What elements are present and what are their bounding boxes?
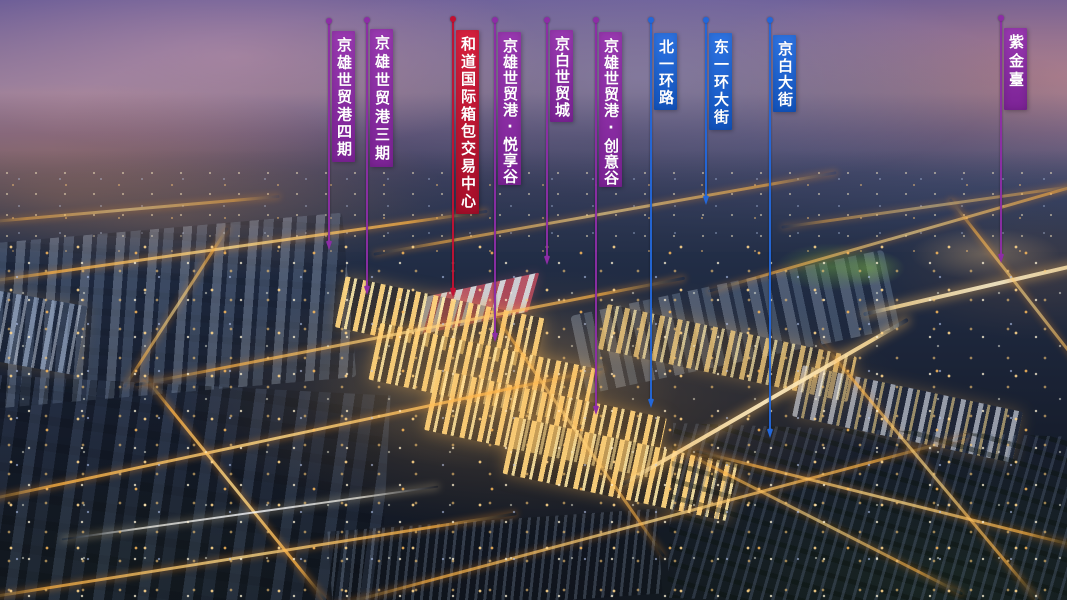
pole-tip-icon [767,428,773,438]
pole-tip-icon [593,405,599,415]
banner-pole [546,20,548,260]
location-banner-label: 和道国际箱包交易中心 [456,30,479,214]
banner-pole [705,20,707,200]
banner-pole [366,20,368,290]
banner-pole [1000,18,1002,258]
pole-top-dot-icon [998,15,1004,21]
location-banner-label: 京雄世贸港四期 [332,31,355,162]
location-banner-label: 东一环大街 [709,33,732,130]
pole-tip-icon [703,195,709,205]
pole-tip-icon [450,287,456,297]
location-banner-label: 京雄世贸港·悦享谷 [498,32,521,185]
location-banner-label: 京雄世贸港三期 [370,29,393,167]
pole-top-dot-icon [364,17,370,23]
banner-pole [494,20,496,337]
pole-tip-icon [492,332,498,342]
pole-tip-icon [648,398,654,408]
location-banner-label: 京白大街 [773,35,796,112]
location-banner-label: 北一环路 [654,33,677,110]
location-banner-label: 京雄世贸港·创意谷 [599,32,622,187]
pole-top-dot-icon [326,18,332,24]
pole-top-dot-icon [492,17,498,23]
pole-tip-icon [998,253,1004,263]
banner-pole [595,20,597,410]
pole-top-dot-icon [593,17,599,23]
banner-pole [452,19,454,292]
pole-top-dot-icon [648,17,654,23]
banner-pole [328,21,330,245]
banner-pole [769,20,771,433]
pole-top-dot-icon [450,16,456,22]
location-banner-label: 紫金臺 [1004,28,1027,110]
pole-top-dot-icon [544,17,550,23]
pole-tip-icon [544,255,550,265]
pole-top-dot-icon [703,17,709,23]
aerial-night-city-scene: 京雄世贸港四期京雄世贸港三期和道国际箱包交易中心京雄世贸港·悦享谷京白世贸城京雄… [0,0,1067,600]
banner-pole [650,20,652,403]
pole-tip-icon [364,285,370,295]
location-banner-label: 京白世贸城 [550,30,573,122]
location-banner-layer: 京雄世贸港四期京雄世贸港三期和道国际箱包交易中心京雄世贸港·悦享谷京白世贸城京雄… [0,0,1067,600]
pole-top-dot-icon [767,17,773,23]
pole-tip-icon [326,240,332,250]
